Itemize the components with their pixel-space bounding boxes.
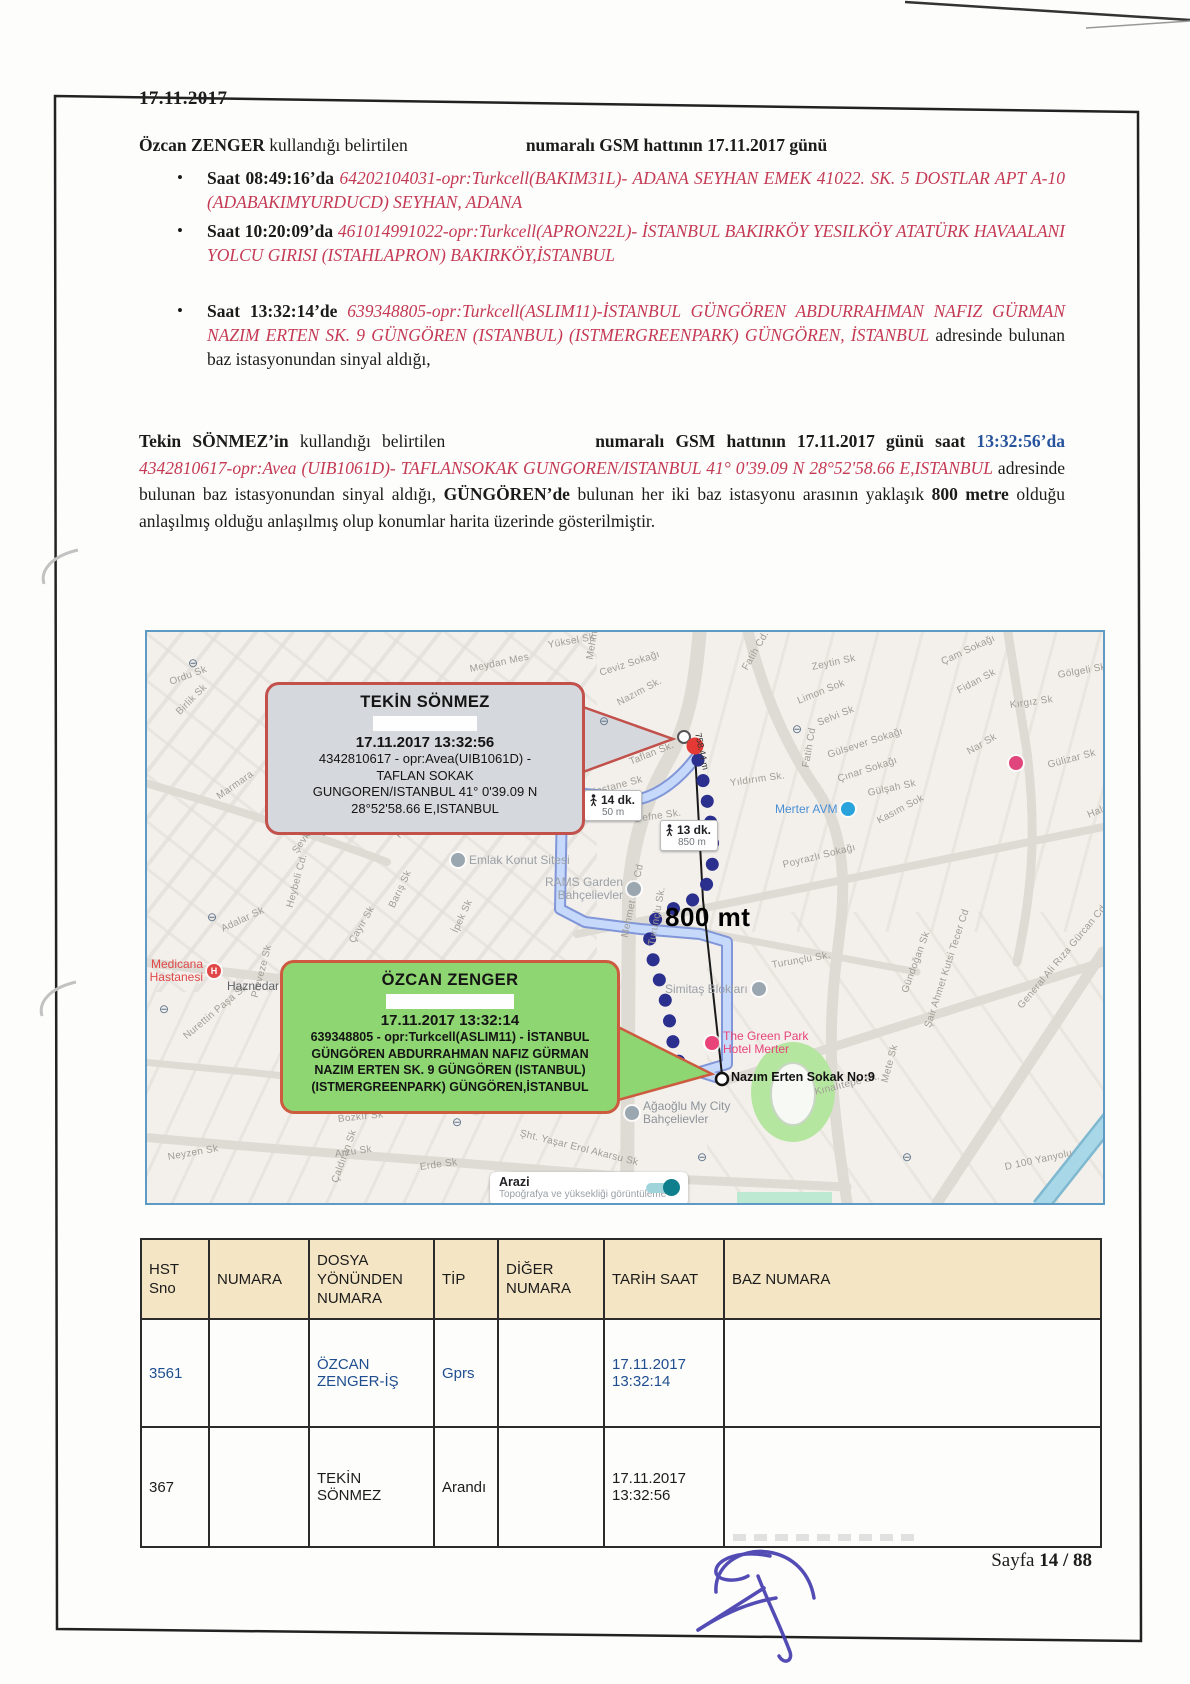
bullet-time: Saat 13:32:14’de [207, 301, 347, 321]
cell-diger [498, 1319, 604, 1427]
page-number: 14 / 88 [1039, 1550, 1092, 1571]
col-header-diger: DİĞER NUMARA [498, 1239, 604, 1319]
cell-dosya: TEKİN SÖNMEZ [309, 1427, 434, 1547]
route-duration: 13 dk. [677, 823, 711, 837]
col-header-baz: BAZ NUMARA [724, 1239, 1101, 1319]
transit-stop-icon: ⊖ [452, 1115, 462, 1129]
route-distance: 50 m [602, 807, 635, 818]
paragraph-text-bold: numaralı GSM hattının 17.11.2017 günü sa… [595, 431, 976, 451]
street-label: Meydan Mes [469, 652, 530, 675]
poi-label: Ağaoğlu My City Bahçelievler [625, 1100, 761, 1126]
street-label: Erde Sk [419, 1157, 458, 1173]
poi-name: Ağaoğlu My City Bahçelievler [643, 1100, 761, 1126]
paragraph-text: bulunan her iki baz istasyonu arasının y… [570, 484, 932, 504]
distance-annotation: 800 mt [665, 902, 750, 933]
cell-baz [724, 1319, 1101, 1427]
callout-line: 4342810617 - opr:Avea(UIB1061D) - [274, 751, 576, 768]
scanner-artifact-line [905, 2, 1190, 20]
street-label: General Ali Rıza Gürcan Cd. [1016, 901, 1105, 1011]
poi-icon [705, 1036, 719, 1050]
poi-icon [627, 882, 641, 896]
street-label: Çayır Sk [347, 904, 377, 945]
cell-hst: 3561 [141, 1319, 209, 1427]
scanner-artifact-line [1086, 21, 1190, 28]
street-label: Taflan Sk. [628, 740, 676, 768]
redacted-phone-number [373, 716, 477, 731]
street-label: Yıldırım Sk. [729, 770, 785, 789]
street-label: Gülşah Sk [867, 778, 917, 799]
street-label: Şair Ahmet Kutsi Tecer Cd [923, 908, 972, 1029]
poi-label: Simitaş Blokları [665, 982, 766, 996]
poi-label: Merter AVM [775, 802, 855, 816]
poi-name: Haznedar [227, 980, 279, 993]
street-label: Fatih Cd. [740, 630, 771, 672]
poi-icon [752, 982, 766, 996]
call-log-table: HST Sno NUMARA DOSYA YÖNÜNDEN NUMARA TİP… [140, 1238, 1102, 1548]
cell-dosya: ÖZCAN ZENGER-İŞ [309, 1319, 434, 1427]
transit-stop-icon: ⊖ [697, 1150, 707, 1164]
redacted-phone-number [386, 994, 514, 1009]
street-label: Barış Sk [387, 869, 414, 910]
transit-stop-icon: ⊖ [159, 1002, 169, 1016]
street-label: Heybeli Cd. [285, 853, 310, 909]
table-row: 367 TEKİN SÖNMEZ Arandı 17.11.2017 13:32… [141, 1427, 1101, 1547]
callout-datetime: 17.11.2017 13:32:56 [274, 734, 576, 751]
col-header-tip: TİP [434, 1239, 498, 1319]
binder-mark [41, 982, 76, 1016]
street-label: Mete Sk [880, 1044, 901, 1084]
paragraph-text: kullandığı belirtilen [265, 135, 408, 155]
person-name-ozcan: Özcan ZENGER [139, 135, 265, 155]
walking-person-icon [665, 824, 674, 837]
cell-tip: Gprs [434, 1319, 498, 1427]
cell-tip: Arandı [434, 1427, 498, 1547]
poi-name: The Green Park Hotel Merter [723, 1030, 835, 1056]
route-duration-badge: 14 dk. 50 m [584, 790, 642, 821]
transit-stop-icon: ⊖ [902, 1150, 912, 1164]
col-header-numara: NUMARA [209, 1239, 309, 1319]
timestamp-blue: 13:32:56’da [977, 431, 1065, 451]
route-distance: 850 m [678, 837, 711, 848]
bullet-icon: • [177, 166, 183, 190]
person-name-tekin: Tekin SÖNMEZ’in [139, 431, 289, 451]
bullet-time: Saat 08:49:16’da [207, 168, 340, 188]
poi-icon: H [207, 964, 221, 978]
paragraph-text-bold: GÜNGÖREN’de [444, 484, 570, 504]
poi-icon [1009, 756, 1023, 770]
handwritten-signature [698, 1551, 814, 1661]
poi-label: Medicana HastanesiH [145, 958, 221, 984]
walking-person-icon [589, 794, 598, 807]
poi-label: Emlak Konut Sitesi [451, 853, 570, 867]
callout-title: TEKİN SÖNMEZ [274, 693, 576, 712]
poi-name: Simitaş Blokları [665, 983, 748, 996]
street-label: D 100 Yanyolu [1004, 1148, 1073, 1173]
bullet-time: Saat 10:20:09’da [207, 221, 338, 241]
poi-name: Merter AVM [775, 803, 837, 816]
street-label: Birlik Sk [174, 682, 209, 717]
poi-icon [451, 853, 465, 867]
transit-stop-icon: ⊖ [188, 656, 198, 670]
cell-diger [498, 1427, 604, 1547]
callout-title: ÖZCAN ZENGER [289, 971, 611, 990]
table-row: 3561 ÖZCAN ZENGER-İŞ Gprs 17.11.2017 13:… [141, 1319, 1101, 1427]
street-label: Limon Sok [796, 678, 846, 707]
street-label: Gülizar Sk [1047, 747, 1097, 770]
poi-name: RAMS Garden Bahçelievler [535, 876, 623, 902]
col-header-tarih: TARİH SAAT [604, 1239, 724, 1319]
poi-label: RAMS Garden Bahçelievler [535, 876, 641, 902]
col-header-dosya: DOSYA YÖNÜNDEN NUMARA [309, 1239, 434, 1319]
poi-label: The Green Park Hotel Merter [705, 1030, 835, 1056]
street-label: Adalar Sk [220, 905, 266, 934]
footer-label: Sayfa [991, 1550, 1039, 1571]
poi-name: Medicana Hastanesi [145, 958, 203, 984]
street-label: Nar Sk [965, 732, 999, 758]
street-label: Gündoğan Sk [900, 930, 932, 994]
street-label: Ceviz Sokağı [598, 649, 661, 679]
street-label: Fidan Sk [955, 667, 997, 696]
poi-label [1009, 756, 1027, 770]
callout-line: 639348805 - opr:Turkcell(ASLIM11) - İSTA… [289, 1029, 611, 1046]
poi-name: Emlak Konut Sitesi [469, 854, 570, 867]
toggle-knob [663, 1179, 680, 1196]
cell-tarih: 17.11.2017 13:32:56 [604, 1427, 724, 1547]
street-label: Mehmet Akif Cd [585, 630, 609, 660]
scanned-document-page: { "page": { "date": "17.11.2017", "foote… [0, 0, 1190, 1684]
route-duration-badge: 13 dk. 850 m [660, 820, 718, 851]
bullet-list: • Saat 08:49:16’da 64202104031-opr:Turkc… [175, 166, 1065, 371]
street-label: Kırgız Sk [1009, 694, 1053, 711]
document-date: 17.11.2017 [139, 88, 227, 110]
table-header-row: HST Sno NUMARA DOSYA YÖNÜNDEN NUMARA TİP… [141, 1239, 1101, 1319]
street-label: Nazım Sk. [615, 676, 663, 709]
binder-mark [43, 550, 78, 584]
street-label: Çınar Sokağı [836, 755, 898, 785]
destination-address-label: Nazım Erten Sokak No:9 [731, 1070, 875, 1084]
callout-line: GUNGOREN/ISTANBUL 41° 0'39.09 N [274, 784, 576, 801]
street-label: Kasım Sok [875, 793, 925, 827]
poi-icon [841, 802, 855, 816]
paragraph-ozcan: Özcan ZENGER kullandığı belirtilennumara… [139, 133, 1065, 157]
faded-redacted-text [733, 1534, 918, 1541]
callout-line: GÜNGÖREN ABDURRAHMAN NAFIZ GÜRMAN [289, 1046, 611, 1063]
distance-bold: 800 metre [932, 484, 1009, 504]
paragraph-text: kullandığı belirtilen [289, 431, 446, 451]
cell-numara [209, 1319, 309, 1427]
street-label: Marmara [215, 769, 256, 802]
map-figure: Yüksel SkCeviz SokağıNazım Sk.Meydan Mes… [145, 630, 1105, 1205]
street-label: İpek Sk [450, 898, 475, 935]
callout-ozcan-zenger: ÖZCAN ZENGER 17.11.2017 13:32:14 6393488… [280, 960, 620, 1114]
bullet-icon: • [177, 299, 183, 323]
col-header-hst-sno: HST Sno [141, 1239, 209, 1319]
callout-datetime: 17.11.2017 13:32:14 [289, 1012, 611, 1029]
paragraph-text-bold: numaralı GSM hattının 17.11.2017 günü [526, 135, 827, 155]
base-station-detail: 4342810617-opr:Avea (UIB1061D)- TAFLANSO… [139, 458, 993, 478]
paragraph-tekin: Tekin SÖNMEZ’in kullandığı belirtilennum… [139, 428, 1065, 534]
transit-stop-icon: ⊖ [599, 714, 609, 728]
bullet-item: • Saat 10:20:09’da 461014991022-opr:Turk… [175, 219, 1065, 267]
transit-stop-icon: ⊖ [207, 910, 217, 924]
cell-hst: 367 [141, 1427, 209, 1547]
page-footer: Sayfa 14 / 88 [850, 1550, 1092, 1572]
bullet-icon: • [177, 219, 183, 243]
callout-line: NAZIM ERTEN SK. 9 GÜNGÖREN (ISTANBUL) [289, 1062, 611, 1079]
bullet-item: • Saat 13:32:14’de 639348805-opr:Turkcel… [175, 299, 1065, 371]
transit-stop-icon: ⊖ [792, 722, 802, 736]
street-label: Şht. Yaşar Erol Akarsu Sk [519, 1128, 640, 1168]
poi-icon [625, 1106, 639, 1120]
street-label: Selvi Sk [816, 704, 856, 729]
callout-tekin-sonmez: TEKİN SÖNMEZ 17.11.2017 13:32:56 4342810… [265, 682, 585, 835]
street-label: Turunçlu Sk. [771, 950, 831, 971]
cell-tarih: 17.11.2017 13:32:14 [604, 1319, 724, 1427]
callout-line: TAFLAN SOKAK [274, 768, 576, 785]
street-label: Çam Sokağı [940, 633, 997, 667]
terrain-toggle-card: Arazi Topoğrafya ve yüksekliği görüntüle… [490, 1172, 688, 1205]
callout-line: 28°52'58.66 E,ISTANBUL [274, 801, 576, 818]
cell-baz [724, 1427, 1101, 1547]
bullet-item: • Saat 08:49:16’da 64202104031-opr:Turkc… [175, 166, 1065, 214]
street-label: Fatih Cd [801, 727, 819, 769]
street-label: Haldun Tan [1086, 790, 1105, 820]
street-label: Gölgeli Sk [1057, 662, 1105, 681]
cell-numara [209, 1427, 309, 1547]
street-label: Poyrazlı Sokağı [782, 842, 857, 871]
street-label: Neyzen Sk [167, 1143, 219, 1163]
street-label: Zeytin Sk [811, 653, 857, 673]
callout-line: (ISTMERGREENPARK) GÜNGÖREN,İSTANBUL [289, 1079, 611, 1096]
route-duration: 14 dk. [601, 793, 635, 807]
